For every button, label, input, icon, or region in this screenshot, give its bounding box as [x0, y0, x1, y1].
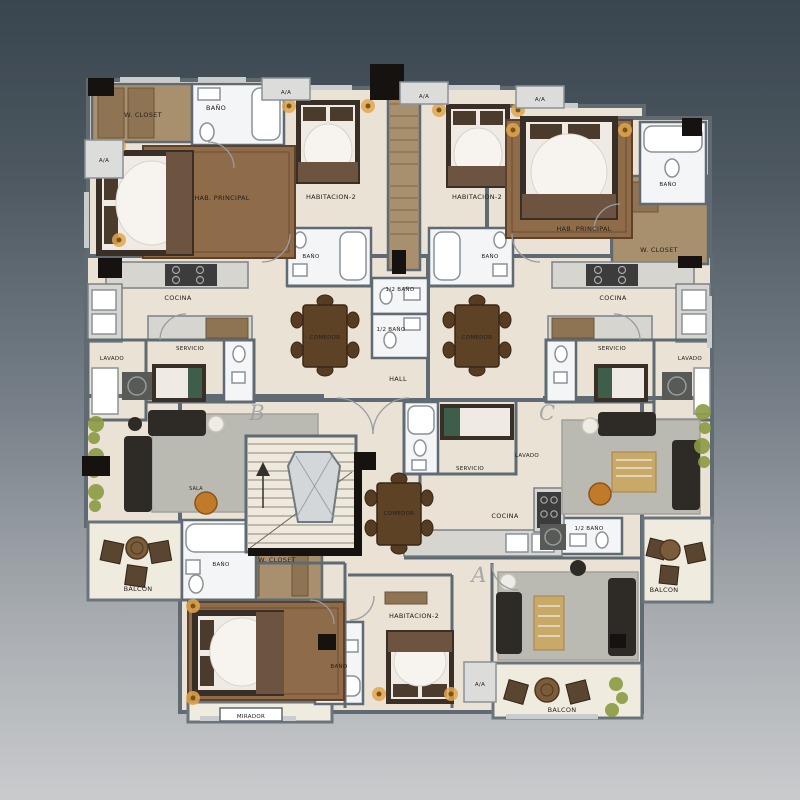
- room-label: COMEDOR: [462, 335, 493, 341]
- bathtub-icon: [340, 232, 366, 280]
- room-label: A/A: [281, 90, 291, 96]
- room-label: SALA: [189, 486, 203, 492]
- room-label: HAB. PRINCIPAL: [556, 225, 611, 233]
- sink-icon: [682, 314, 706, 334]
- sofa: [496, 592, 522, 654]
- room-label: COCINA: [599, 294, 626, 302]
- sink-icon: [404, 318, 420, 330]
- room-label: W. CLOSET: [640, 246, 678, 254]
- room-label: HABITACION-2: [389, 612, 439, 620]
- fridge-icon: [552, 318, 594, 338]
- toilet-icon: [200, 123, 214, 141]
- room-label: BALCON: [124, 585, 153, 593]
- room-label: COMEDOR: [310, 335, 341, 341]
- toilet-icon: [384, 332, 396, 348]
- sink-icon: [493, 264, 507, 276]
- room-label: COCINA: [491, 512, 518, 520]
- service-bed-a: [440, 404, 514, 440]
- ac-box: [262, 78, 310, 100]
- armchair-round: [195, 492, 217, 514]
- room-label: BAÑO: [206, 103, 226, 112]
- toilet-icon: [189, 575, 203, 593]
- room-label: 1/2 BAÑO: [575, 525, 604, 532]
- unit-letter-a: A: [469, 563, 486, 587]
- room-label: HALL: [389, 375, 407, 383]
- toilet-icon: [494, 232, 506, 248]
- room-label: A/A: [535, 97, 545, 103]
- room-label: COCINA: [164, 294, 191, 302]
- room-label: LAVADO: [100, 356, 125, 362]
- sofa: [148, 410, 206, 436]
- toilet-icon: [665, 159, 679, 177]
- room-label: A/A: [99, 158, 109, 164]
- room-label: BAÑO: [302, 253, 320, 260]
- room-label: BAÑO: [212, 561, 230, 568]
- washer-icon: [662, 372, 692, 400]
- unit-letter-c: C: [539, 401, 555, 425]
- room-label: 1/2 BAÑO: [377, 326, 406, 333]
- balcony-a-set: [504, 678, 590, 704]
- gold-runner: [534, 596, 564, 650]
- side-table: [570, 560, 586, 576]
- gold-runner: [612, 452, 656, 492]
- sink-icon: [92, 290, 116, 310]
- room-label: A/A: [475, 682, 485, 688]
- floor-plan-drawing: W. CLOSET BAÑO A/A HAB. PRINCIPAL A/A HA…: [0, 0, 800, 800]
- room-label: SERVICIO: [456, 466, 484, 472]
- room-label: HABITACION-2: [306, 193, 356, 201]
- room-label: W. CLOSET: [124, 111, 162, 119]
- sink-icon: [506, 534, 528, 552]
- room-label: COMEDOR: [384, 511, 415, 517]
- stove-icon: [537, 492, 561, 528]
- washer-icon: [122, 372, 152, 400]
- unit-letter-b: B: [248, 401, 264, 425]
- service-bed-b: [152, 364, 206, 402]
- room-label: SERVICIO: [598, 346, 626, 352]
- room-label: HABITACION-2: [452, 193, 502, 201]
- service-bed-c: [594, 364, 648, 402]
- fridge-icon: [206, 318, 248, 338]
- room-label: BALCON: [650, 586, 679, 594]
- side-table: [128, 417, 142, 431]
- room-label: 1/2 BAÑO: [386, 286, 415, 293]
- sofa: [124, 436, 152, 512]
- room-label: LAVADO: [515, 453, 540, 459]
- stair-strip-top: [388, 92, 420, 270]
- room-label: A/A: [419, 94, 429, 100]
- toilet-icon: [596, 532, 608, 548]
- room-label: BALCON: [548, 706, 577, 714]
- washer-icon: [540, 524, 566, 550]
- room-label: LAVADO: [678, 356, 703, 362]
- armchair-round: [589, 483, 611, 505]
- sink-icon: [293, 264, 307, 276]
- sofa: [598, 412, 656, 436]
- room-label: BAÑO: [330, 663, 348, 670]
- bathtub-icon: [434, 232, 460, 280]
- central-staircase: [246, 436, 356, 552]
- sink-icon: [198, 88, 220, 100]
- sink-icon: [570, 534, 586, 546]
- room-label: BAÑO: [659, 181, 677, 188]
- room-label: MIRADOR: [237, 714, 265, 720]
- shelf: [385, 592, 427, 604]
- stove-icon: [165, 264, 217, 286]
- room-label: HAB. PRINCIPAL: [194, 194, 249, 202]
- room-label: W. CLOSET: [258, 556, 296, 564]
- sink-icon: [186, 560, 200, 574]
- sink-icon: [92, 314, 116, 334]
- pouf: [582, 418, 598, 434]
- stove-icon: [586, 264, 638, 286]
- floor-plan-stage: W. CLOSET BAÑO A/A HAB. PRINCIPAL A/A HA…: [0, 0, 800, 800]
- sink-icon: [682, 290, 706, 310]
- bed-hab-principal-a: [186, 599, 284, 705]
- ac-box: [400, 82, 448, 104]
- pouf: [208, 416, 224, 432]
- room-label: SERVICIO: [176, 346, 204, 352]
- bathtub-icon: [186, 524, 252, 552]
- room-label: BAÑO: [481, 253, 499, 260]
